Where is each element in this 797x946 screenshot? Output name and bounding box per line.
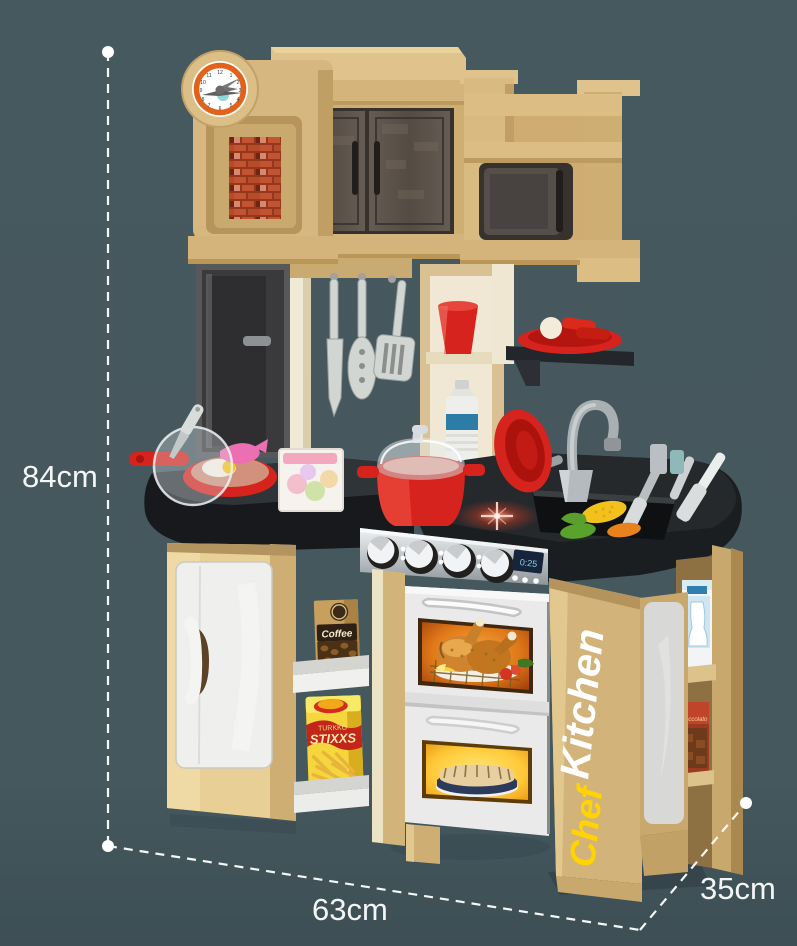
svg-text:Coffee: Coffee [321,628,353,640]
svg-text:7: 7 [208,103,211,109]
svg-text:9: 9 [200,88,203,94]
svg-text:0:25: 0:25 [519,557,538,569]
svg-text:1: 1 [230,73,233,79]
svg-text:4: 4 [237,97,240,103]
svg-text:5: 5 [230,103,233,109]
svg-text:10: 10 [200,80,206,86]
svg-text:63cm: 63cm [312,892,388,927]
svg-text:8: 8 [202,97,205,103]
svg-text:84cm: 84cm [22,459,98,494]
svg-text:2: 2 [237,80,240,86]
svg-text:Chef: Chef [561,782,610,869]
svg-text:35cm: 35cm [700,871,776,906]
svg-text:STIXXS: STIXXS [310,730,357,747]
svg-text:11: 11 [206,73,211,79]
svg-text:12: 12 [217,70,223,76]
svg-text:TURKKO: TURKKO [318,725,348,733]
svg-text:6: 6 [219,106,222,112]
